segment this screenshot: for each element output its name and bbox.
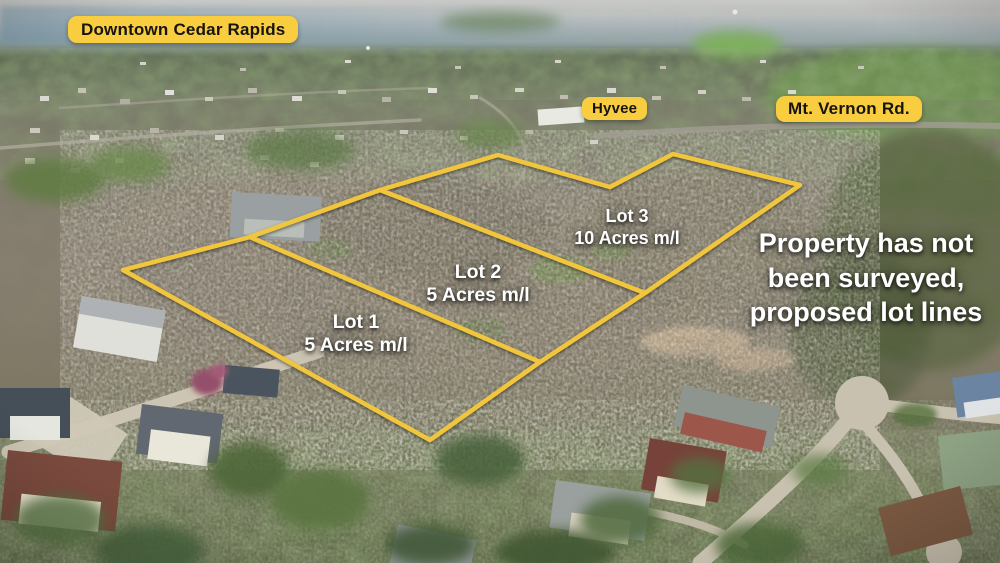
lot-2-name: Lot 2 bbox=[426, 261, 529, 284]
lot-3-label: Lot 3 10 Acres m/l bbox=[574, 205, 679, 249]
lot-3-size: 10 Acres m/l bbox=[574, 227, 679, 249]
real-estate-aerial-graphic: Downtown Cedar Rapids Hyvee Mt. Vernon R… bbox=[0, 0, 1000, 563]
lot-2-label: Lot 2 5 Acres m/l bbox=[426, 261, 529, 307]
disclaimer-line-2: been surveyed, bbox=[716, 261, 1000, 296]
lot-1-size: 5 Acres m/l bbox=[304, 334, 407, 357]
lot-2-size: 5 Acres m/l bbox=[426, 284, 529, 307]
lot-1-name: Lot 1 bbox=[304, 311, 407, 334]
disclaimer-line-1: Property has not bbox=[716, 226, 1000, 261]
survey-disclaimer: Property has not been surveyed, proposed… bbox=[716, 226, 1000, 330]
badge-hyvee: Hyvee bbox=[582, 97, 647, 120]
lot-3-name: Lot 3 bbox=[574, 205, 679, 227]
badge-mt-vernon-rd: Mt. Vernon Rd. bbox=[776, 96, 922, 122]
lot-1-label: Lot 1 5 Acres m/l bbox=[304, 311, 407, 357]
disclaimer-line-3: proposed lot lines bbox=[716, 295, 1000, 330]
badge-downtown-cedar-rapids: Downtown Cedar Rapids bbox=[68, 16, 298, 43]
